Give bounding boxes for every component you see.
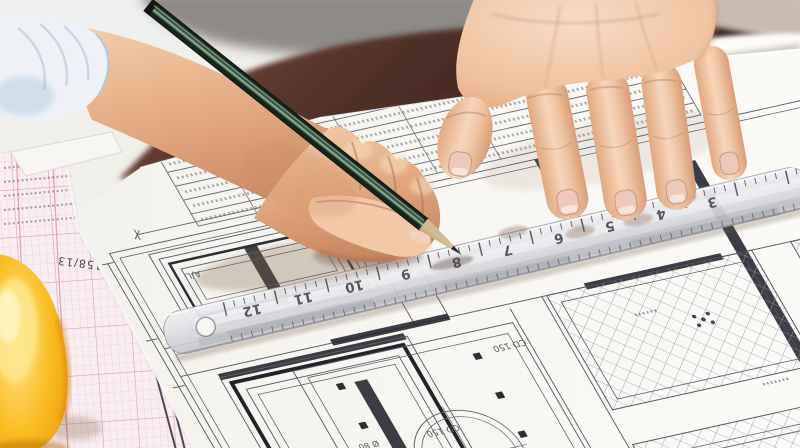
photo-svg: A/L CD 150 CD 150 Ø 80 1158/13 [0, 0, 800, 448]
photo-drafting-scene: A/L CD 150 CD 150 Ø 80 1158/13 [0, 0, 800, 448]
